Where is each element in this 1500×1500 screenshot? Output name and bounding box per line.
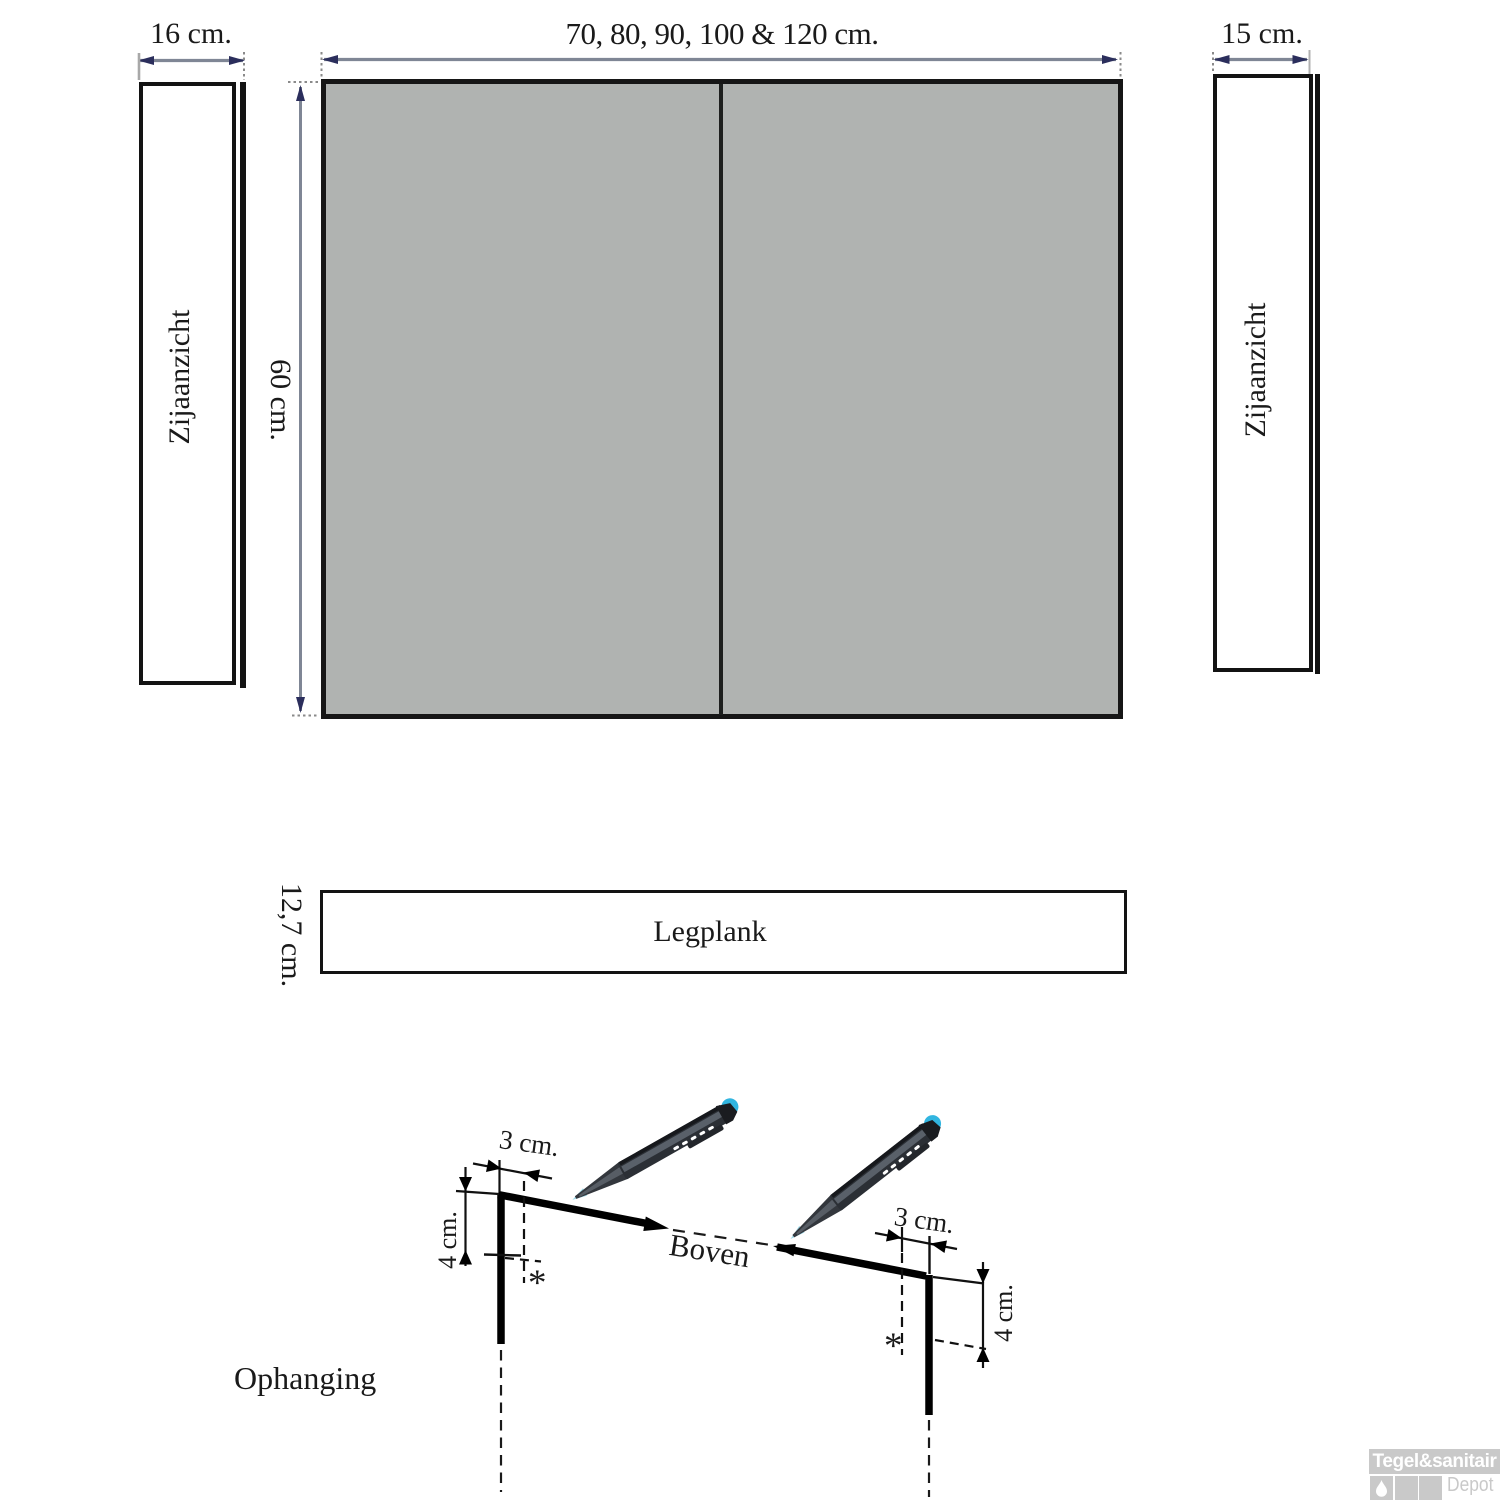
svg-text:*: *	[528, 1263, 547, 1304]
svg-text:*: *	[884, 1326, 903, 1367]
svg-text:4 cm.: 4 cm.	[989, 1284, 1018, 1342]
svg-text:4 cm.: 4 cm.	[433, 1211, 462, 1269]
svg-text:3 cm.: 3 cm.	[497, 1124, 561, 1162]
svg-text:Boven: Boven	[667, 1227, 753, 1274]
